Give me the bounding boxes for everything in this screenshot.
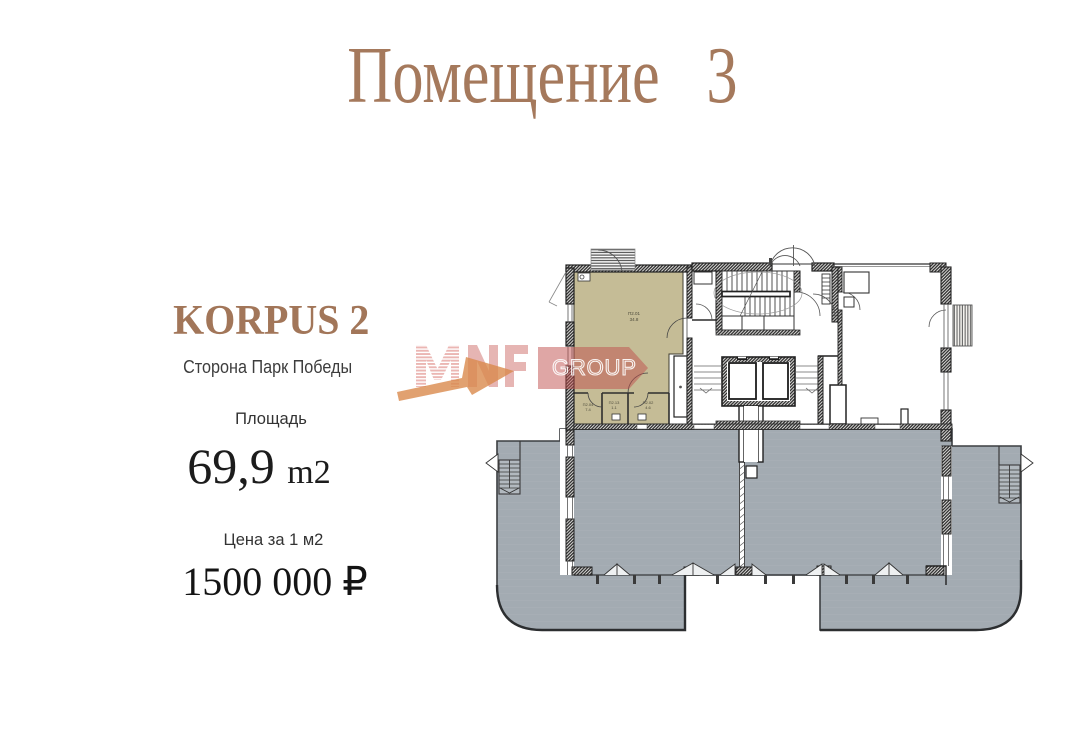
svg-text:4.6: 4.6 (645, 405, 651, 410)
svg-text:7.4: 7.4 (585, 407, 591, 412)
svg-text:GROUP: GROUP (552, 355, 637, 380)
svg-text:П2.01: П2.01 (628, 311, 640, 316)
svg-text:1.1: 1.1 (611, 405, 617, 410)
svg-text:34.8: 34.8 (630, 317, 639, 322)
